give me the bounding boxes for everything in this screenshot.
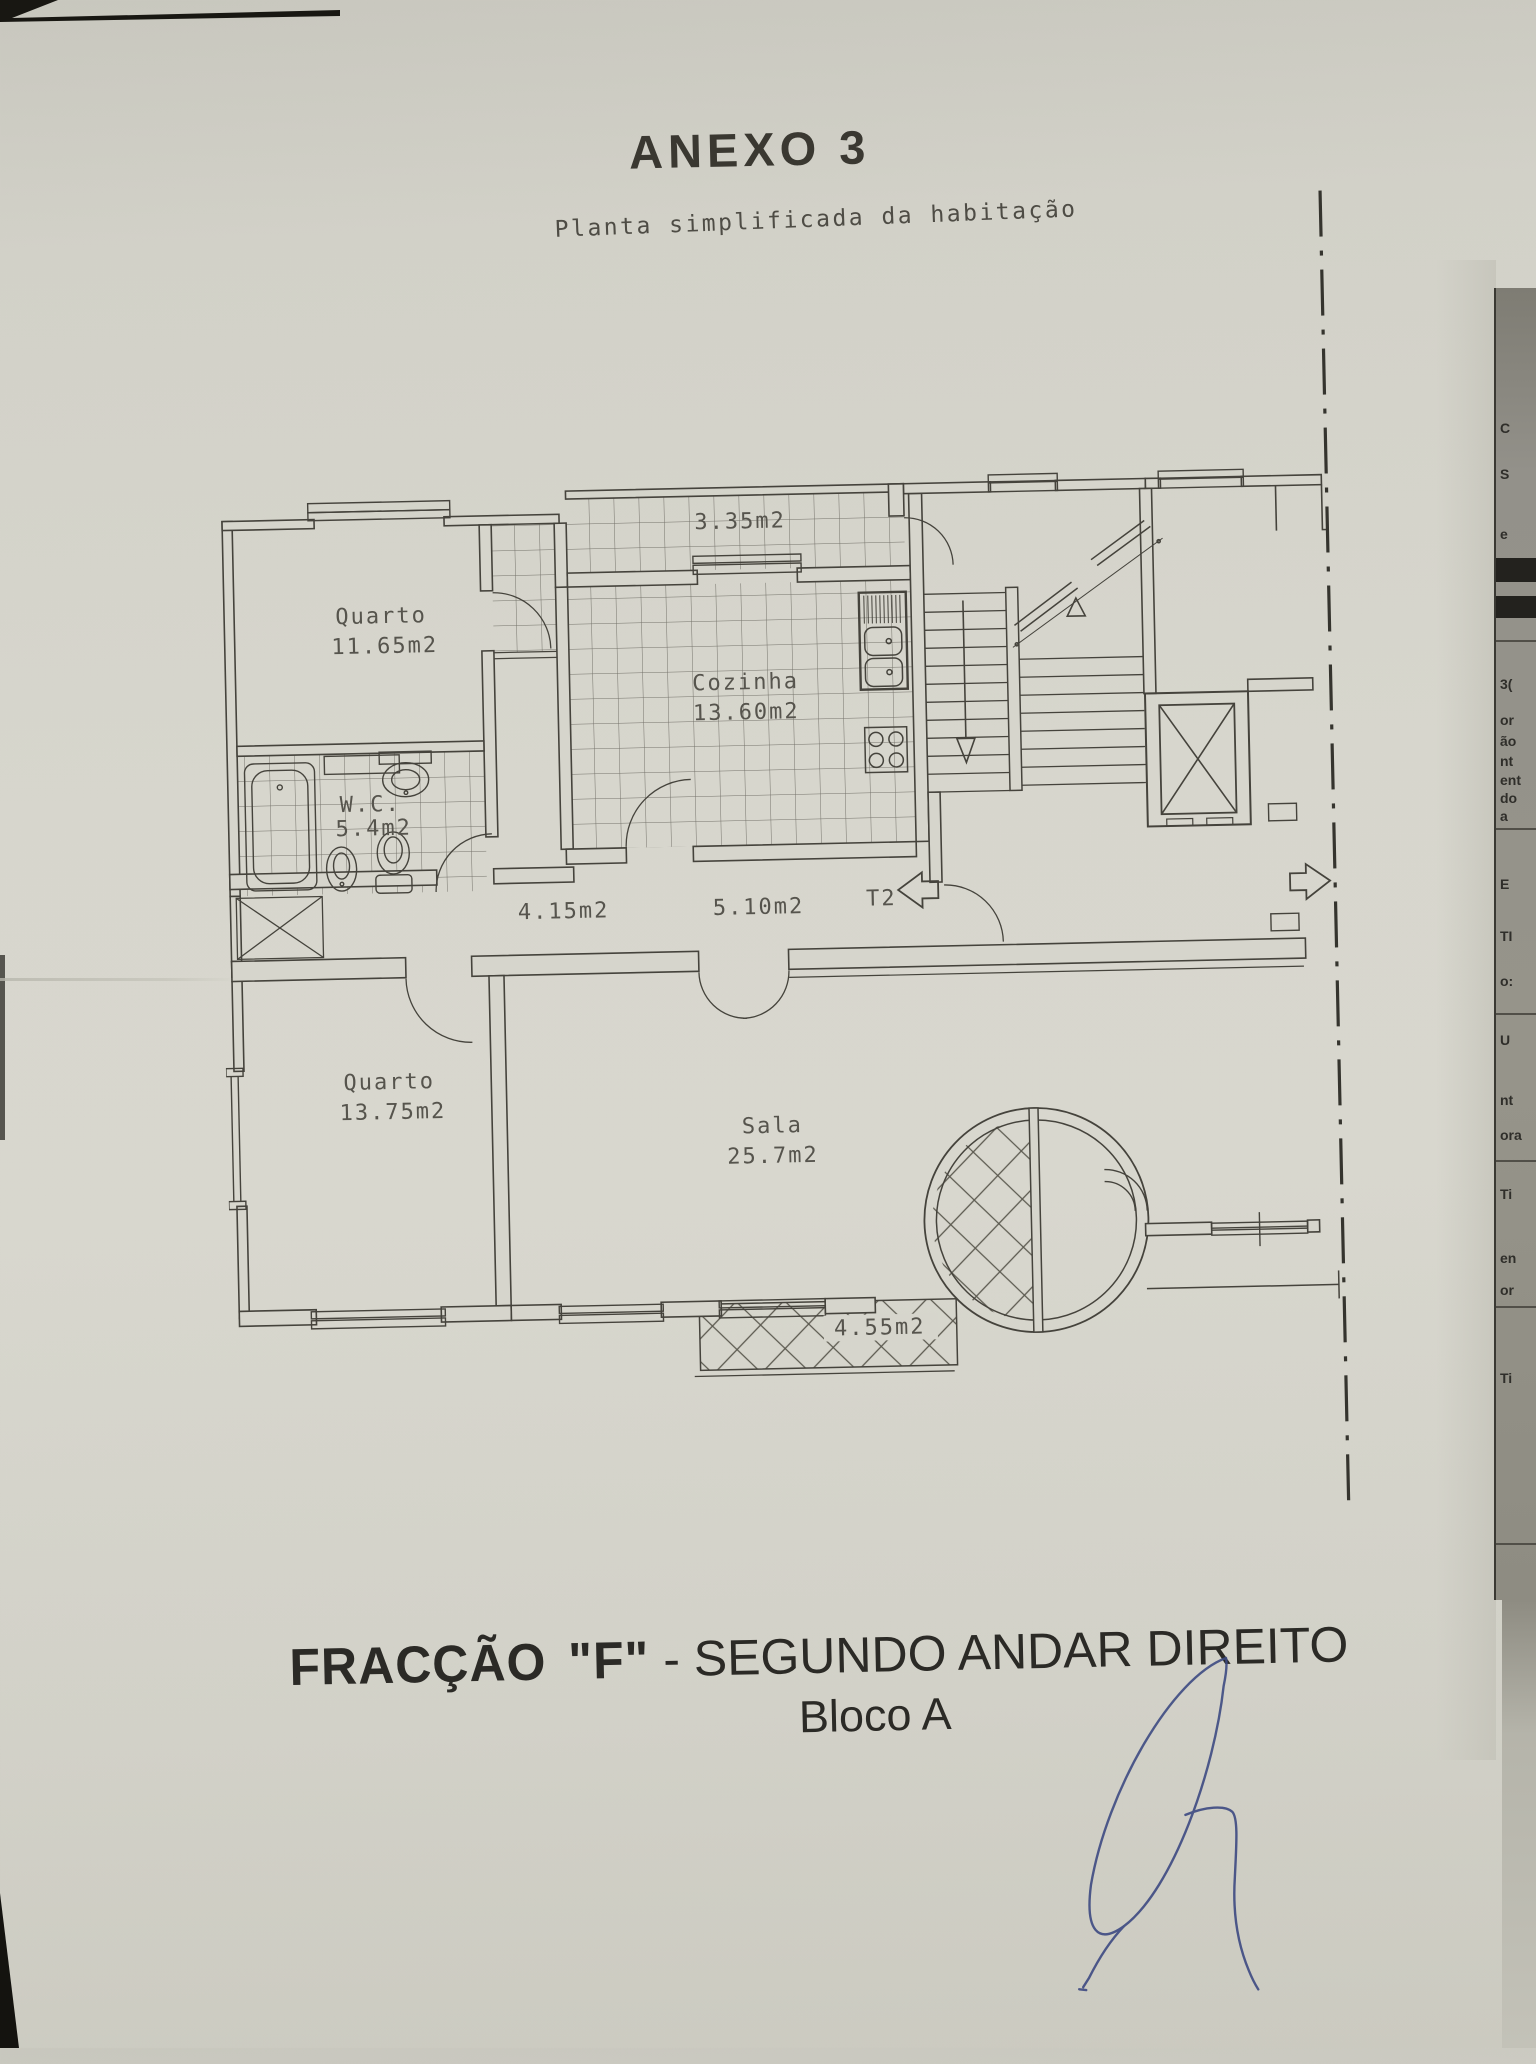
room-area: 13.60m2 [693, 699, 800, 726]
bedroom2-window [311, 1309, 445, 1319]
page-edge-text-fragment: en [1500, 1250, 1516, 1266]
page-edge-text-fragment: a [1500, 808, 1508, 824]
scanned-floorplan-page: { "page": { "title": "ANEXO 3", "subtitl… [0, 0, 1536, 2048]
room-area: 13.75m2 [339, 1099, 446, 1126]
entry-arrows [896, 803, 1331, 939]
page-edge-text-fragment: Ti [1500, 1186, 1512, 1202]
room-area: 11.65m2 [331, 633, 438, 660]
page-edge-text-fragment: o: [1500, 973, 1513, 989]
page-edge-text-fragment: E [1500, 876, 1509, 892]
page-title: ANEXO 3 [628, 119, 870, 179]
stair-up-arrow-icon [1067, 598, 1085, 616]
entry-door [944, 884, 1003, 943]
page-edge-text-fragment: S [1500, 466, 1509, 482]
scan-black-edge-left [0, 955, 5, 1140]
typology-label: T2 [866, 886, 897, 912]
living-room-double-door [699, 971, 747, 1019]
paper-crease [0, 978, 238, 981]
page-edge-text-fragment: nt [1500, 1092, 1513, 1108]
page-edge-text-fragment: ora [1500, 1127, 1522, 1143]
scan-shadow-right [1436, 260, 1496, 1760]
vestibule-tiles [491, 523, 557, 652]
page-edge-text-fragment: or [1500, 712, 1514, 728]
underlay-dark-bar [1496, 596, 1536, 618]
underlay-rule [1496, 1013, 1536, 1015]
page-edge-text-fragment: 3( [1500, 676, 1512, 692]
page-edge-text-fragment: U [1500, 1032, 1510, 1048]
stair-divider [1006, 587, 1022, 790]
handwritten-signature [1052, 1637, 1290, 2022]
page-edge-text-fragment: nt [1500, 753, 1513, 769]
page-edge-text-fragment: ão [1500, 733, 1516, 749]
scanned-sheet: ANEXO 3 Planta simplificada da habitação [0, 0, 1536, 2064]
page-edge-text-fragment: Ti [1500, 1370, 1512, 1386]
stair-treads-right [1019, 657, 1146, 786]
room-label: W.C. [339, 792, 401, 818]
page-edge-text-fragment: ent [1500, 772, 1521, 788]
page-edge-text-fragment: do [1500, 790, 1517, 806]
underlay-rule [1496, 1160, 1536, 1162]
room-area: 25.7m2 [727, 1143, 819, 1170]
room-area: 5.4m2 [335, 816, 412, 843]
entry-arrow-right-icon [1290, 864, 1331, 900]
property-division-line [1320, 191, 1349, 1513]
room-label: Quarto [343, 1069, 435, 1096]
stairwell [922, 520, 1168, 792]
underlay-rule [1496, 1543, 1536, 1545]
underlay-rule [1496, 828, 1536, 830]
page-edge-text-fragment: e [1500, 526, 1508, 542]
room-label: Quarto [335, 603, 427, 630]
page-edge-bottom [1502, 1600, 1536, 2048]
corridor-area: 5.10m2 [713, 894, 805, 921]
page-edge-text-fragment: TI [1500, 928, 1512, 944]
room-label: Sala [742, 1113, 804, 1139]
balcony-bottom-area: 4.55m2 [834, 1314, 926, 1341]
balcony-top-area: 3.35m2 [694, 508, 786, 535]
hall-area: 4.15m2 [518, 898, 610, 925]
floor-plan-drawing: Quarto 11.65m2 3.35m2 Cozinha 13.60m2 W.… [207, 182, 1376, 1547]
living-room-window [559, 1304, 663, 1313]
fraction-label: FRACÇÃO [289, 1632, 547, 1698]
page-edge-text-fragment: C [1500, 420, 1510, 436]
fraction-letter: "F" [568, 1629, 650, 1691]
underlay-rule [1496, 1306, 1536, 1308]
underlay-dark-bar [1496, 558, 1536, 582]
room-label: Cozinha [692, 669, 799, 696]
underlying-page-sliver: CSe3(orãontentdoaETIo:UntoraTienorTi [1494, 288, 1536, 1600]
bedroom2-door [406, 977, 472, 1043]
stair-down-arrow-icon [954, 600, 976, 762]
elevator-shaft [1145, 691, 1251, 826]
tiled-floors [232, 492, 917, 897]
page-edge-text-fragment: or [1500, 1282, 1514, 1298]
hall-closet [236, 897, 323, 960]
underlay-rule [1496, 640, 1536, 642]
